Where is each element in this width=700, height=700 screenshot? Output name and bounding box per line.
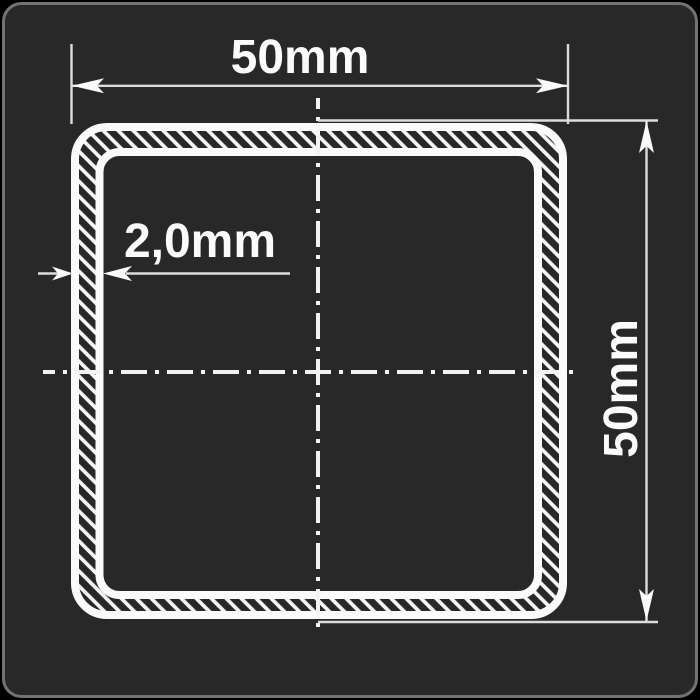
width-dimension-label: 50mm: [231, 31, 370, 84]
technical-drawing: 50mm 50mm 2,0mm: [0, 0, 700, 700]
height-dimension-label: 50mm: [595, 319, 648, 458]
drawing-canvas: 50mm 50mm 2,0mm: [0, 0, 700, 700]
thickness-dimension-label: 2,0mm: [124, 215, 276, 268]
